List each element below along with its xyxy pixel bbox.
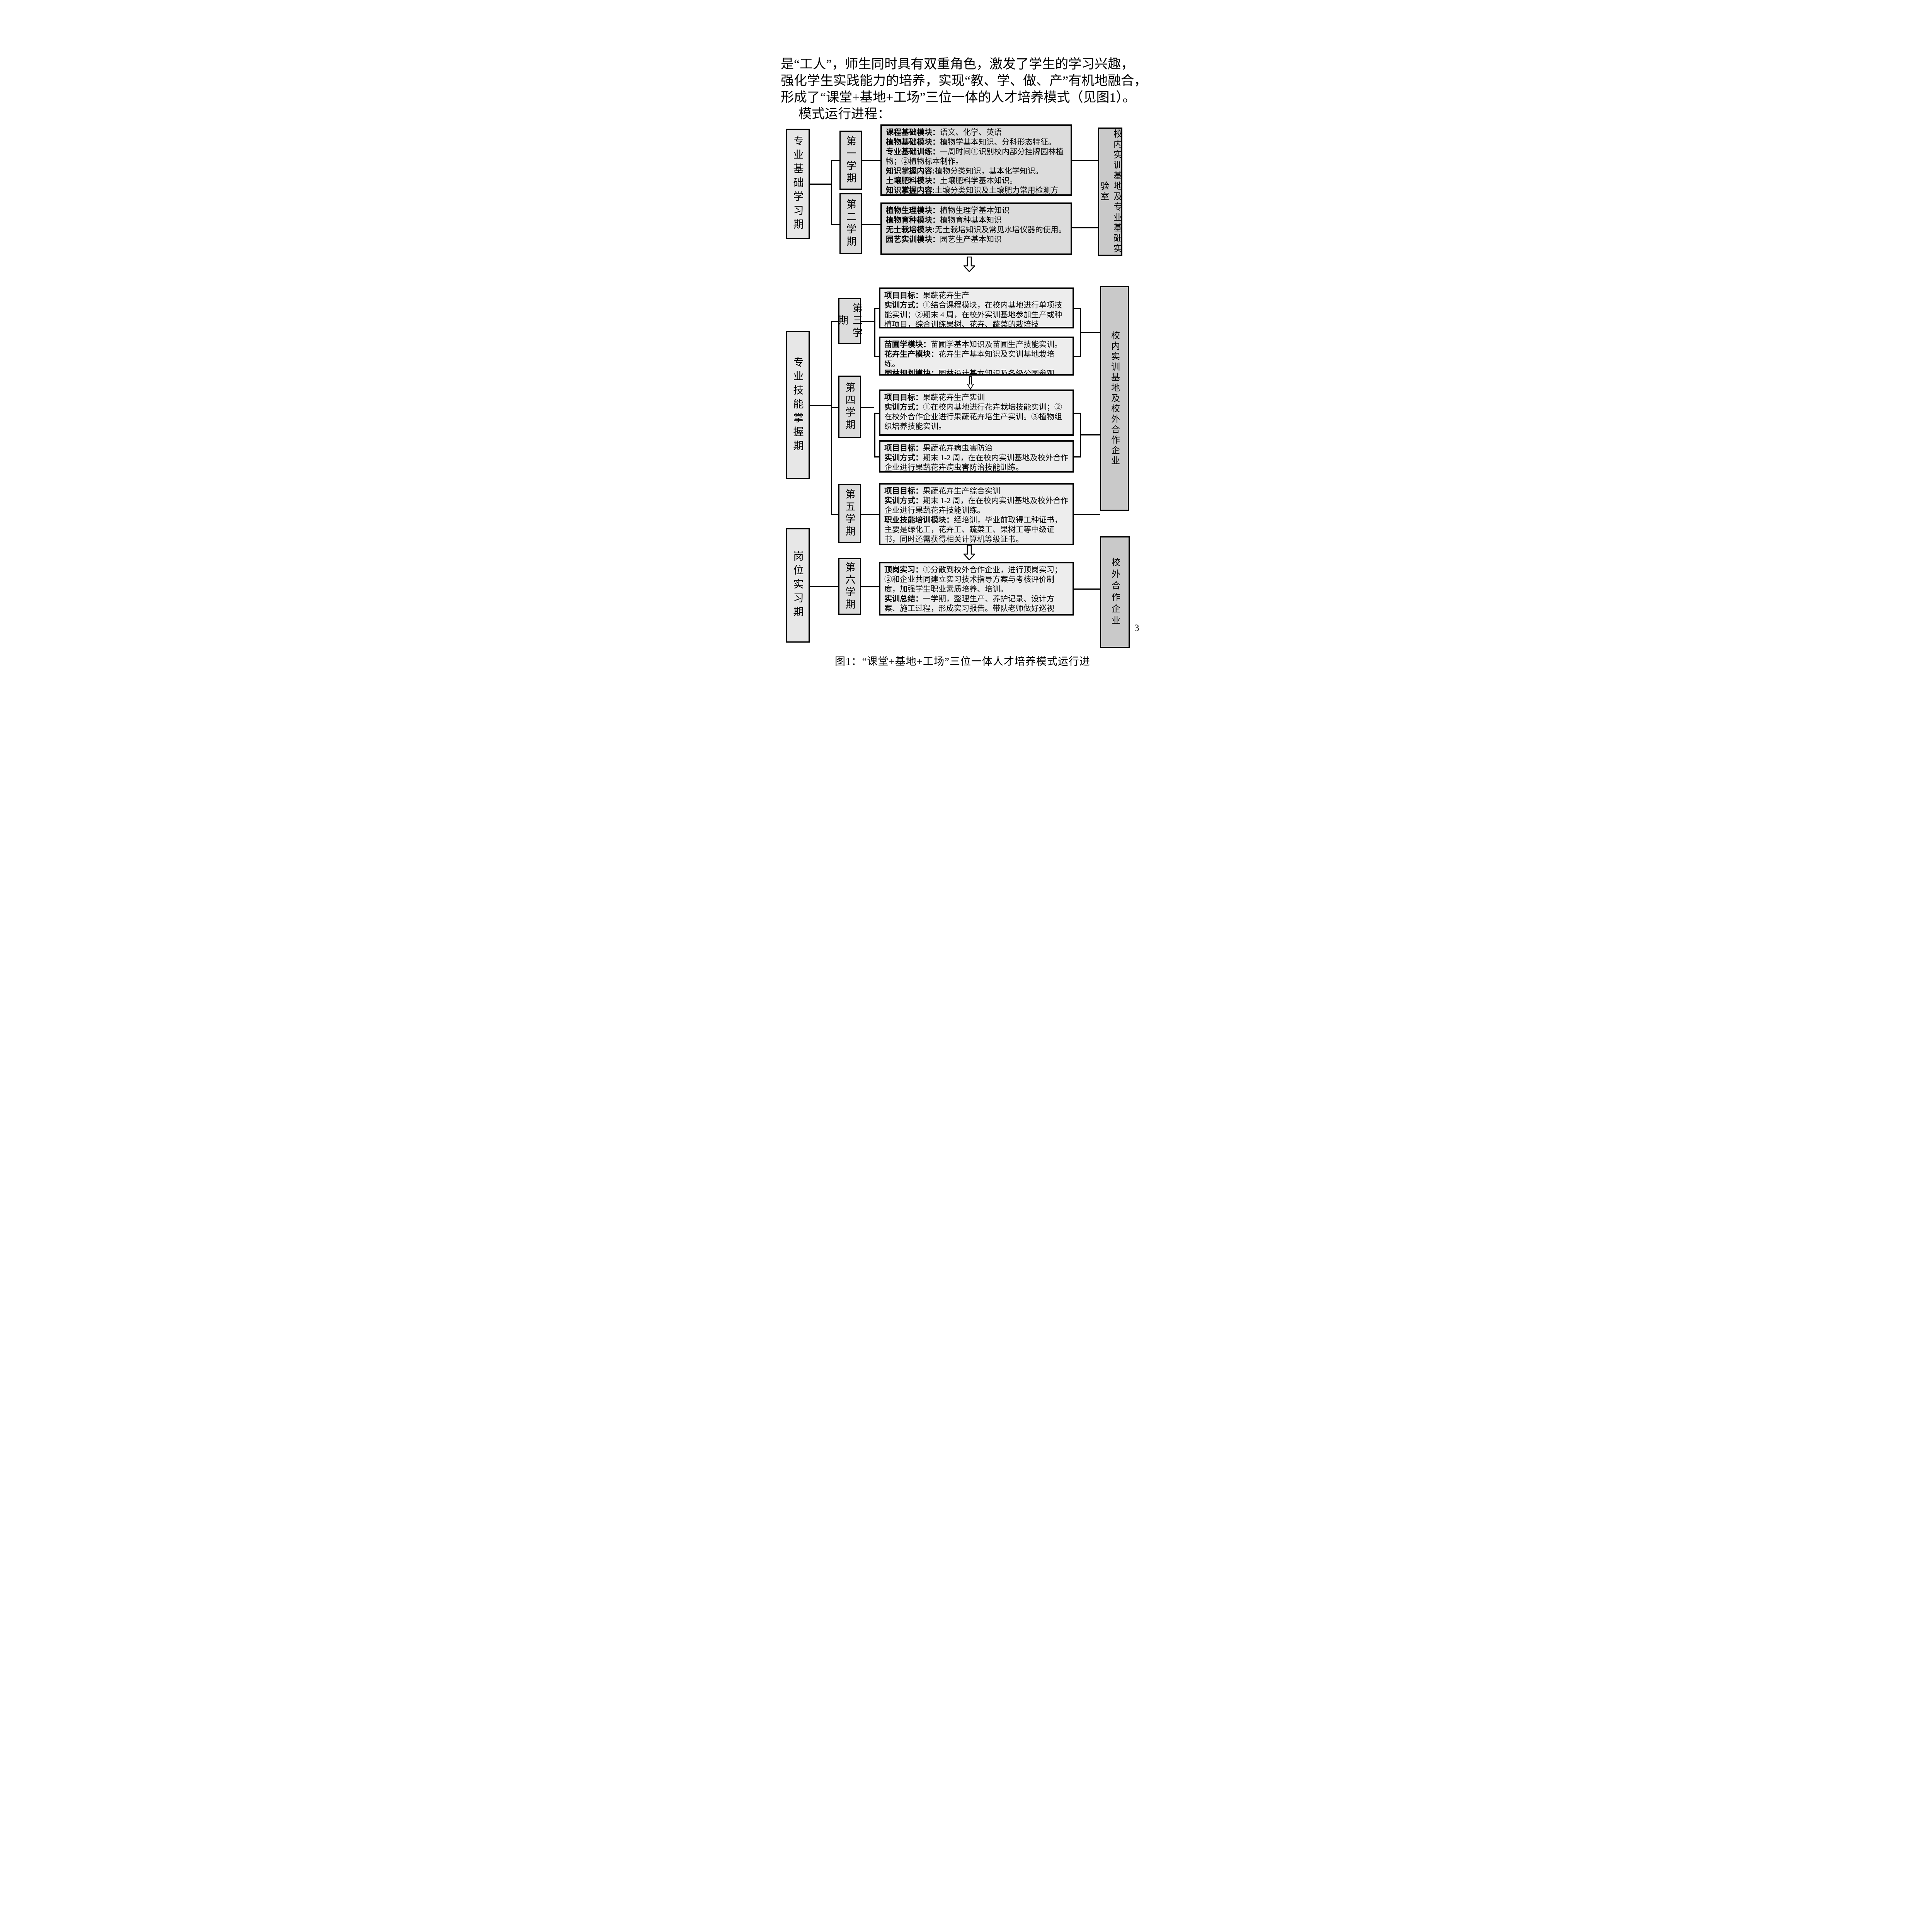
module-text: 果蔬花卉生产实训 [923,393,985,402]
connector-line [1074,514,1100,515]
connector-line [1080,434,1100,435]
period-box-skill: 专业技能掌握期 [786,331,810,479]
base-box-campus-lab: 校内实训基地及专业基础实验室 [1098,128,1122,256]
connector-line [1074,413,1080,414]
figure-caption: 图1：“课堂+基地+工场”三位一体人才培养模式运行进 [835,653,1105,668]
module-text: 植物分类知识，基本化学知识。 [935,167,1043,175]
connector-line [831,160,839,161]
module-text: 园艺生产基本知识 [940,235,1002,244]
module-text: 植物育种基本知识 [940,216,1002,224]
connector-line [831,224,839,225]
module-entry: 专业基础训练：一周时间①识别校内部分挂牌园林植物；②植物标本制作。 [886,147,1067,167]
module-text: 果蔬花卉病虫害防治 [923,444,993,452]
semester-box-4: 第四学期 [838,376,861,438]
module-label: 土壤肥料模块： [886,177,940,185]
connector-line [861,586,879,587]
module-entry: 园林规划模块：园林设计基本知识及各级公园参观。 [884,369,1069,376]
connector-line [874,356,879,357]
module-entry: 植物育种模块：植物育种基本知识 [886,216,1067,225]
module-label: 无土栽培模块: [886,226,935,234]
module-entry: 项目目标：果蔬花卉病虫害防治 [884,444,1069,453]
module-label: 植物育种模块： [886,216,940,224]
content-box-post-internship: 顶岗实习：①分散到校外合作企业，进行顶岗实习；②和企业共同建立实习技术指导方案与… [879,562,1074,616]
paragraph-line-process: 模式运行进程： [781,106,1149,122]
connector-line [810,405,831,406]
module-label: 实训方式： [884,454,923,462]
connector-line [1072,227,1098,228]
base-box-campus-enterprise: 校内实训基地及校外合作企业 [1100,286,1129,511]
base-box-external-enterprise: 校外合作企业 [1100,536,1130,648]
module-text: 苗圃学基本知识及苗圃生产技能实训。 [931,340,1062,349]
connector-line [831,407,838,408]
intro-paragraph: 是“工人”，师生同时具有双重角色，激发了学生的学习兴趣， 强化学生实践能力的培养… [781,56,1149,122]
module-label: 项目目标： [884,487,923,495]
module-entry: 实训总结：一学期，整理生产、养护记录、设计方案、施工过程，形成实习报告。带队老师… [884,594,1069,614]
connector-line [1074,308,1080,309]
paragraph-line: 强化学生实践能力的培养，实现“教、学、做、产”有机地融合， [781,73,1149,89]
paragraph-line: 是“工人”，师生同时具有双重角色，激发了学生的学习兴趣， [781,56,1149,73]
module-entry: 顶岗实习：①分散到校外合作企业，进行顶岗实习；②和企业共同建立实习技术指导方案与… [884,565,1069,594]
module-entry: 知识掌握内容:土壤分类知识及土壤肥力常用检测方法，植物几种生理指标的检测。 [886,186,1067,196]
connector-line [874,413,875,457]
module-entry: 无土栽培模块:无土栽培知识及常见水培仪器的使用。 [886,225,1067,235]
module-label: 花卉生产模块： [884,350,938,359]
module-label: 项目目标： [884,393,923,402]
connector-line [862,160,880,161]
period-box-internship: 岗位实习期 [786,528,810,643]
module-label: 项目目标： [884,291,923,300]
connector-line [831,160,832,225]
document-page: 是“工人”，师生同时具有双重角色，激发了学生的学习兴趣， 强化学生实践能力的培养… [719,0,1198,678]
module-entry: 实训方式：期末 1-2 周，在在校内实训基地及校外合作企业进行果蔬花卉技能训练。 [884,496,1069,515]
module-label: 实训方式： [884,403,923,412]
semester-box-2: 第二学期 [839,193,862,254]
module-entry: 实训方式：期末 1-2 周，在在校内实训基地及校外合作企业进行果蔬花卉病虫害防治… [884,453,1069,473]
connector-line [874,308,879,309]
module-entry: 实训方式：①在校内基地进行花卉栽培技能实训；②在校外合作企业进行果蔬花卉培生产实… [884,403,1069,432]
module-entry: 花卉生产模块：花卉生产基本知识及实训基地栽培练。 [884,350,1069,369]
connector-line [861,407,874,408]
connector-line [862,224,880,225]
module-label: 园艺实训模块： [886,235,940,244]
connector-line [831,321,838,322]
module-entry: 项目目标：果蔬花卉生产 [884,291,1069,301]
module-entry: 植物基础模块：植物学基本知识、分科形态特征。 [886,138,1067,147]
connector-line [874,308,875,357]
module-text: 植物生理学基本知识 [940,206,1010,215]
module-label: 课程基础模块： [886,128,940,137]
module-label: 职业技能培训模块： [884,516,954,524]
flow-arrow-down-icon [964,257,975,272]
module-entry: 课程基础模块：语文、化学、英语 [886,128,1067,138]
content-box-semester2: 植物生理模块：植物生理学基本知识 植物育种模块：植物育种基本知识 无土栽培模块:… [880,202,1072,255]
semester-box-5: 第五学期 [838,484,861,543]
connector-line [1074,588,1100,590]
connector-line [874,413,879,414]
module-text: 果蔬花卉生产 [923,291,969,300]
module-entry: 实训方式：①结合课程模块，在校内基地进行单项技能实训；②期末 4 周，在校外实训… [884,301,1069,328]
connector-line [1074,356,1080,357]
module-label: 实训方式： [884,497,923,505]
paragraph-line: 形成了“课堂+基地+工场”三位一体的人才培养模式（见图1）。 [781,89,1149,106]
module-entry: 职业技能培训模块：经培训，毕业前取得工种证书，主要是绿化工，花卉工、蔬菜工、果树… [884,515,1069,544]
semester-box-3: 第三学期 [838,298,861,344]
module-label: 苗圃学模块： [884,340,931,349]
content-box-production-training: 项目目标：果蔬花卉生产实训 实训方式：①在校内基地进行花卉栽培技能实训；②在校外… [879,389,1074,436]
content-box-semester1: 课程基础模块：语文、化学、英语 植物基础模块：植物学基本知识、分科形态特征。 专… [880,124,1072,196]
module-entry: 苗圃学模块：苗圃学基本知识及苗圃生产技能实训。 [884,340,1069,350]
semester-box-1: 第一学期 [839,131,862,190]
module-entry: 项目目标：果蔬花卉生产实训 [884,393,1069,403]
module-text: 植物学基本知识、分科形态特征。 [940,138,1056,146]
page-number: 3 [1134,623,1139,634]
module-label: 顶岗实习： [884,566,923,574]
content-box-pest-control: 项目目标：果蔬花卉病虫害防治 实训方式：期末 1-2 周，在在校内实训基地及校外… [879,440,1074,473]
module-entry: 项目目标：果蔬花卉生产综合实训 [884,486,1069,496]
module-label: 植物基础模块： [886,138,940,146]
module-entry: 土壤肥料模块：土壤肥料学基本知识。 [886,176,1067,186]
module-text: 语文、化学、英语 [940,128,1002,137]
connector-line [831,514,838,515]
module-label: 项目目标： [884,444,923,452]
module-text: 无土栽培知识及常见水培仪器的使用。 [935,226,1066,234]
module-label: 植物生理模块： [886,206,940,215]
module-label: 园林规划模块： [884,369,938,376]
flow-arrow-small-down-icon [967,376,974,389]
semester-box-6: 第六学期 [838,558,861,615]
module-entry: 知识掌握内容:植物分类知识，基本化学知识。 [886,167,1067,176]
module-label: 实训总结： [884,595,923,603]
flow-arrow-down-icon [964,545,975,560]
module-label: 知识掌握内容: [886,186,935,195]
connector-line [861,514,879,515]
connector-line [1072,160,1098,161]
period-box-foundation: 专业基础学习期 [786,129,810,239]
connector-line [874,456,879,457]
module-text: 果蔬花卉生产综合实训 [923,487,1000,495]
content-box-nursery-modules: 苗圃学模块：苗圃学基本知识及苗圃生产技能实训。 花卉生产模块：花卉生产基本知识及… [879,337,1074,376]
content-box-comprehensive-training: 项目目标：果蔬花卉生产综合实训 实训方式：期末 1-2 周，在在校内实训基地及校… [879,483,1074,545]
connector-line [810,184,831,185]
content-box-goal-production: 项目目标：果蔬花卉生产 实训方式：①结合课程模块，在校内基地进行单项技能实训；②… [879,287,1074,328]
module-label: 知识掌握内容: [886,167,935,175]
connector-line [831,321,832,515]
module-entry: 植物生理模块：植物生理学基本知识 [886,206,1067,216]
connector-line [861,321,874,322]
module-label: 专业基础训练： [886,148,940,156]
module-entry: 园艺实训模块：园艺生产基本知识 [886,235,1067,245]
connector-line [1080,332,1100,333]
module-text: 园林设计基本知识及各级公园参观。 [938,369,1062,376]
connector-line [810,586,838,587]
module-text: 土壤肥料学基本知识。 [940,177,1017,185]
connector-line [1074,456,1080,457]
module-label: 实训方式： [884,301,923,310]
